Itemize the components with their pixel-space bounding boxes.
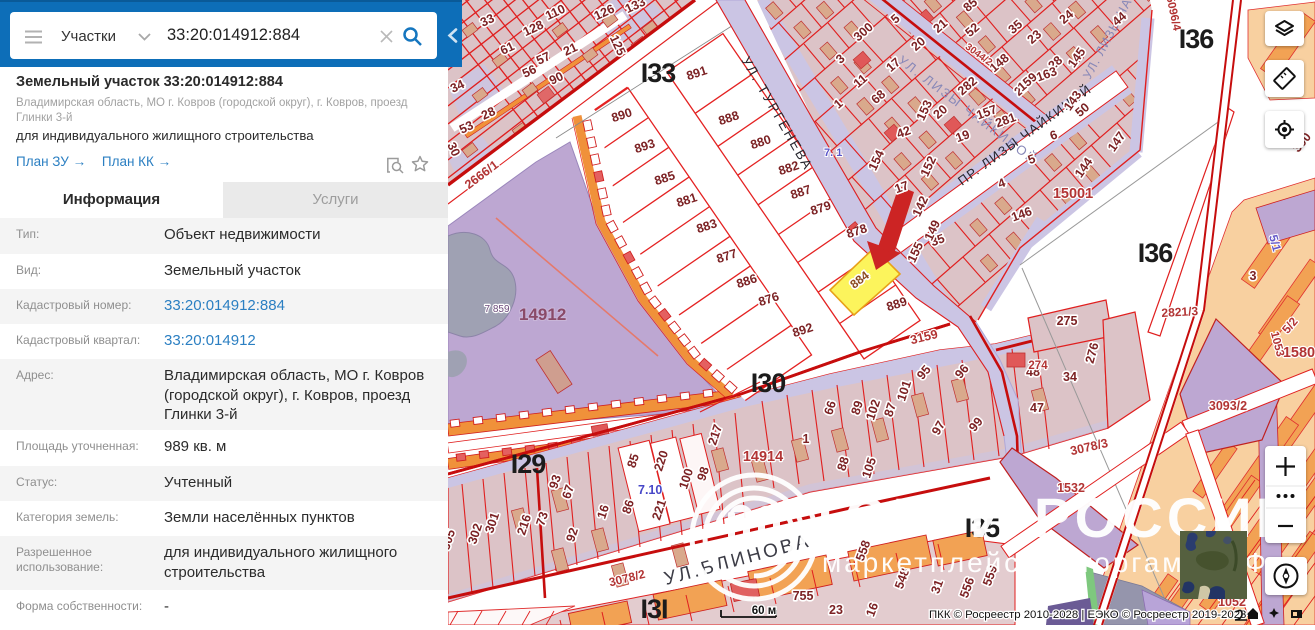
svg-text:23: 23 [829, 603, 843, 617]
svg-text:34: 34 [1063, 370, 1077, 384]
svg-text:47: 47 [1030, 401, 1044, 415]
svg-text:I30: I30 [751, 368, 786, 398]
svg-text:I29: I29 [511, 449, 547, 479]
svg-text:15001: 15001 [1053, 186, 1093, 202]
svg-text:14912: 14912 [519, 305, 566, 324]
svg-text:274: 274 [1028, 360, 1048, 372]
svg-text:2821/3: 2821/3 [1161, 304, 1199, 320]
svg-text:7. 1: 7. 1 [824, 147, 842, 159]
svg-text:1: 1 [803, 432, 810, 446]
svg-text:ПКК © Росреестр 2010-2028 | ЕЭ: ПКК © Росреестр 2010-2028 | ЕЭКО © Росре… [929, 609, 1253, 621]
svg-text:15802: 15802 [1283, 345, 1315, 361]
svg-text:275: 275 [1057, 314, 1078, 328]
svg-text:3: 3 [1250, 269, 1257, 283]
svg-text:I36: I36 [1138, 238, 1174, 268]
svg-text:7 859: 7 859 [484, 304, 509, 315]
svg-text:7.10: 7.10 [638, 483, 662, 497]
svg-text:I36: I36 [1179, 24, 1215, 54]
svg-text:3093/2: 3093/2 [1209, 399, 1247, 413]
svg-text:I33: I33 [641, 58, 677, 88]
svg-text:60 м: 60 м [752, 605, 777, 617]
svg-text:I3I: I3I [640, 594, 667, 624]
svg-text:755: 755 [793, 589, 814, 603]
svg-text:14914: 14914 [743, 449, 783, 465]
